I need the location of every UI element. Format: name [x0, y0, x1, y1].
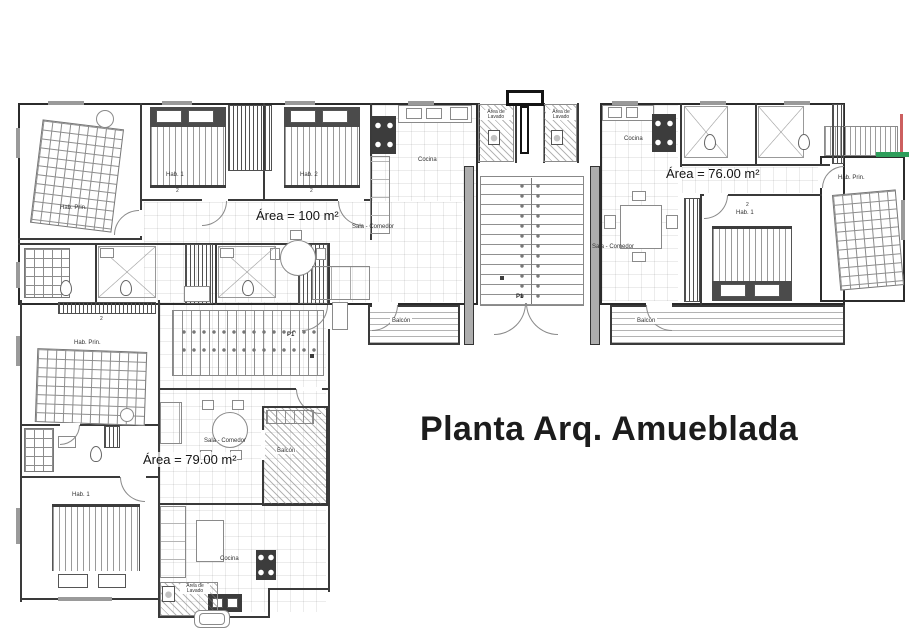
inner-wall — [700, 194, 702, 305]
stove-icon — [256, 550, 276, 580]
column-mark — [500, 276, 504, 280]
stair-icon — [480, 176, 584, 306]
room-label-hab-1: Hab. 1 — [166, 172, 184, 178]
stair-rail-posts — [534, 182, 544, 304]
room-label-cocina: Cocina — [624, 136, 643, 142]
sink-icon — [426, 108, 442, 119]
pillow-icon — [754, 284, 780, 297]
column-mark — [310, 354, 314, 358]
room-label-area-lavado: Área de Lavado — [546, 110, 576, 120]
room-label-balcon: Balcón — [390, 318, 412, 324]
room-label-hab-1: Hab. 1 — [736, 210, 754, 216]
toilet-icon — [60, 280, 72, 296]
bed-icon — [832, 189, 904, 290]
bed-icon — [284, 127, 360, 185]
closet-hatch — [228, 105, 272, 171]
vent-shaft — [506, 90, 544, 106]
chair-icon — [666, 215, 678, 229]
pillow-icon — [720, 284, 746, 297]
closet-hatch — [58, 302, 156, 314]
inner-wall — [18, 243, 330, 245]
chair-icon — [632, 252, 646, 262]
room-label-sala-comedor: Sala - Comedor — [352, 224, 394, 230]
inner-wall — [215, 243, 217, 305]
door-arc — [494, 303, 526, 335]
chair-icon — [202, 400, 214, 410]
kitchen-counter — [370, 156, 390, 234]
area-label-apt-79: Área = 79.00 m² — [143, 452, 237, 467]
pillow-icon — [188, 110, 214, 123]
window-mark — [285, 101, 315, 105]
sink-icon — [406, 108, 422, 119]
outer-wall — [328, 300, 330, 592]
entry-step — [332, 302, 348, 330]
area-label-apt-100: Área = 100 m² — [256, 208, 339, 223]
bed-icon — [712, 229, 792, 281]
closet-marker: 2 — [100, 316, 103, 322]
toilet-icon — [242, 280, 254, 296]
room-label-area-lavado: Área de Lavado — [180, 584, 210, 594]
chair-icon — [632, 191, 646, 201]
washer-icon — [488, 130, 500, 145]
inner-wall — [18, 238, 142, 240]
sink-icon — [227, 598, 238, 608]
floor-plan-page: { "title": "Planta Arq. Amueblada", "are… — [0, 0, 909, 630]
window-mark — [16, 262, 20, 288]
window-mark — [16, 336, 20, 366]
chair-icon — [316, 248, 326, 260]
room-label-sala-comedor: Sala - Comedor — [592, 244, 634, 250]
outer-wall — [20, 300, 22, 602]
window-mark — [162, 101, 192, 105]
room-label-area-lavado: Área de Lavado — [480, 110, 512, 120]
balcony-hatch — [610, 305, 845, 345]
armchair-icon — [96, 110, 114, 128]
shower-icon — [24, 428, 54, 472]
door-marker-p1: P1 — [516, 294, 523, 300]
pillow-icon — [322, 110, 348, 123]
closet-marker: 2 — [176, 188, 179, 194]
sofa-icon — [160, 402, 182, 444]
chair-icon — [604, 215, 616, 229]
bed-foot-icon — [150, 185, 226, 188]
room-label-cocina: Cocina — [418, 157, 437, 163]
window-mark — [16, 128, 20, 158]
room-label-hab-1: Hab. 1 — [72, 492, 90, 498]
plan-title: Planta Arq. Amueblada — [420, 410, 798, 449]
bed-icon — [52, 507, 140, 571]
closet-hatch — [684, 198, 700, 302]
toilet-icon — [120, 280, 132, 296]
shaft-hatch — [832, 104, 844, 164]
dining-table-icon — [620, 205, 662, 249]
armchair-icon — [120, 408, 134, 422]
pillow-icon — [156, 110, 182, 123]
chair-icon — [290, 230, 302, 240]
window-mark — [901, 200, 905, 240]
window-mark — [58, 597, 112, 601]
balcony-steps — [266, 410, 314, 424]
inner-wall — [95, 243, 97, 305]
dining-table-icon — [280, 240, 316, 276]
door-marker-p1: P1 — [286, 332, 295, 338]
room-label-hab-prin: Hab. Prin. — [60, 205, 87, 211]
room-label-hab-2: Hab. 2 — [300, 172, 318, 178]
sink-icon — [608, 107, 622, 118]
kitchen-counter — [450, 107, 468, 120]
stair-rail-posts — [180, 328, 318, 337]
vent-shaft — [520, 106, 529, 154]
sink-icon — [100, 248, 114, 258]
sink-icon — [626, 107, 638, 118]
window-mark — [784, 101, 810, 105]
shower-icon — [684, 106, 728, 158]
door-arc — [526, 303, 558, 335]
stair-rail-posts — [518, 182, 528, 304]
stair-rail-posts — [180, 346, 318, 355]
entry-step — [199, 613, 225, 625]
chair-icon — [232, 400, 244, 410]
inner-wall — [515, 103, 517, 163]
stair-rail — [531, 178, 532, 304]
door-arc — [60, 425, 80, 445]
shower-icon — [758, 106, 804, 158]
toilet-icon — [704, 134, 716, 150]
annotation-red-line — [900, 114, 903, 154]
pillow-icon — [58, 574, 88, 588]
door-gap — [261, 430, 265, 460]
window-mark — [700, 101, 726, 105]
closet-hatch — [104, 426, 120, 448]
toilet-icon — [90, 446, 102, 462]
outer-wall — [268, 588, 330, 590]
room-label-cocina: Cocina — [220, 556, 239, 562]
outer-wall — [268, 588, 270, 618]
room-label-balcon: Balcón — [635, 318, 657, 324]
area-label-apt-76: Área = 76.00 m² — [666, 166, 760, 181]
bed-icon — [30, 119, 124, 232]
tv-cabinet-icon — [184, 286, 210, 302]
toilet-icon — [798, 134, 810, 150]
stair-wall — [590, 166, 600, 345]
inner-wall — [680, 103, 682, 167]
stair-wall — [464, 166, 474, 345]
closet-marker: 2 — [746, 202, 749, 208]
door-arc — [120, 477, 145, 502]
room-label-hab-prin: Hab. Prin. — [838, 175, 865, 181]
pillow-icon — [290, 110, 316, 123]
room-label-sala-comedor: Sala - Comedor — [204, 438, 246, 444]
closet-marker: 2 — [310, 188, 313, 194]
pillow-icon — [98, 574, 126, 588]
bed-icon — [150, 127, 226, 185]
sink-icon — [220, 248, 234, 258]
window-mark — [16, 508, 20, 544]
washer-icon — [551, 130, 563, 145]
inner-wall — [577, 103, 579, 163]
stove-icon — [372, 116, 396, 154]
inner-wall — [755, 103, 757, 165]
stove-icon — [652, 114, 676, 152]
room-label-balcon: Balcón — [276, 448, 296, 454]
sofa-icon — [312, 266, 370, 300]
kitchen-counter — [160, 506, 186, 578]
washer-icon — [162, 586, 175, 602]
annotation-green-line — [876, 152, 909, 157]
bed-foot-icon — [284, 185, 360, 188]
room-label-hab-prin: Hab. Prin. — [74, 340, 101, 346]
window-mark — [48, 101, 84, 105]
